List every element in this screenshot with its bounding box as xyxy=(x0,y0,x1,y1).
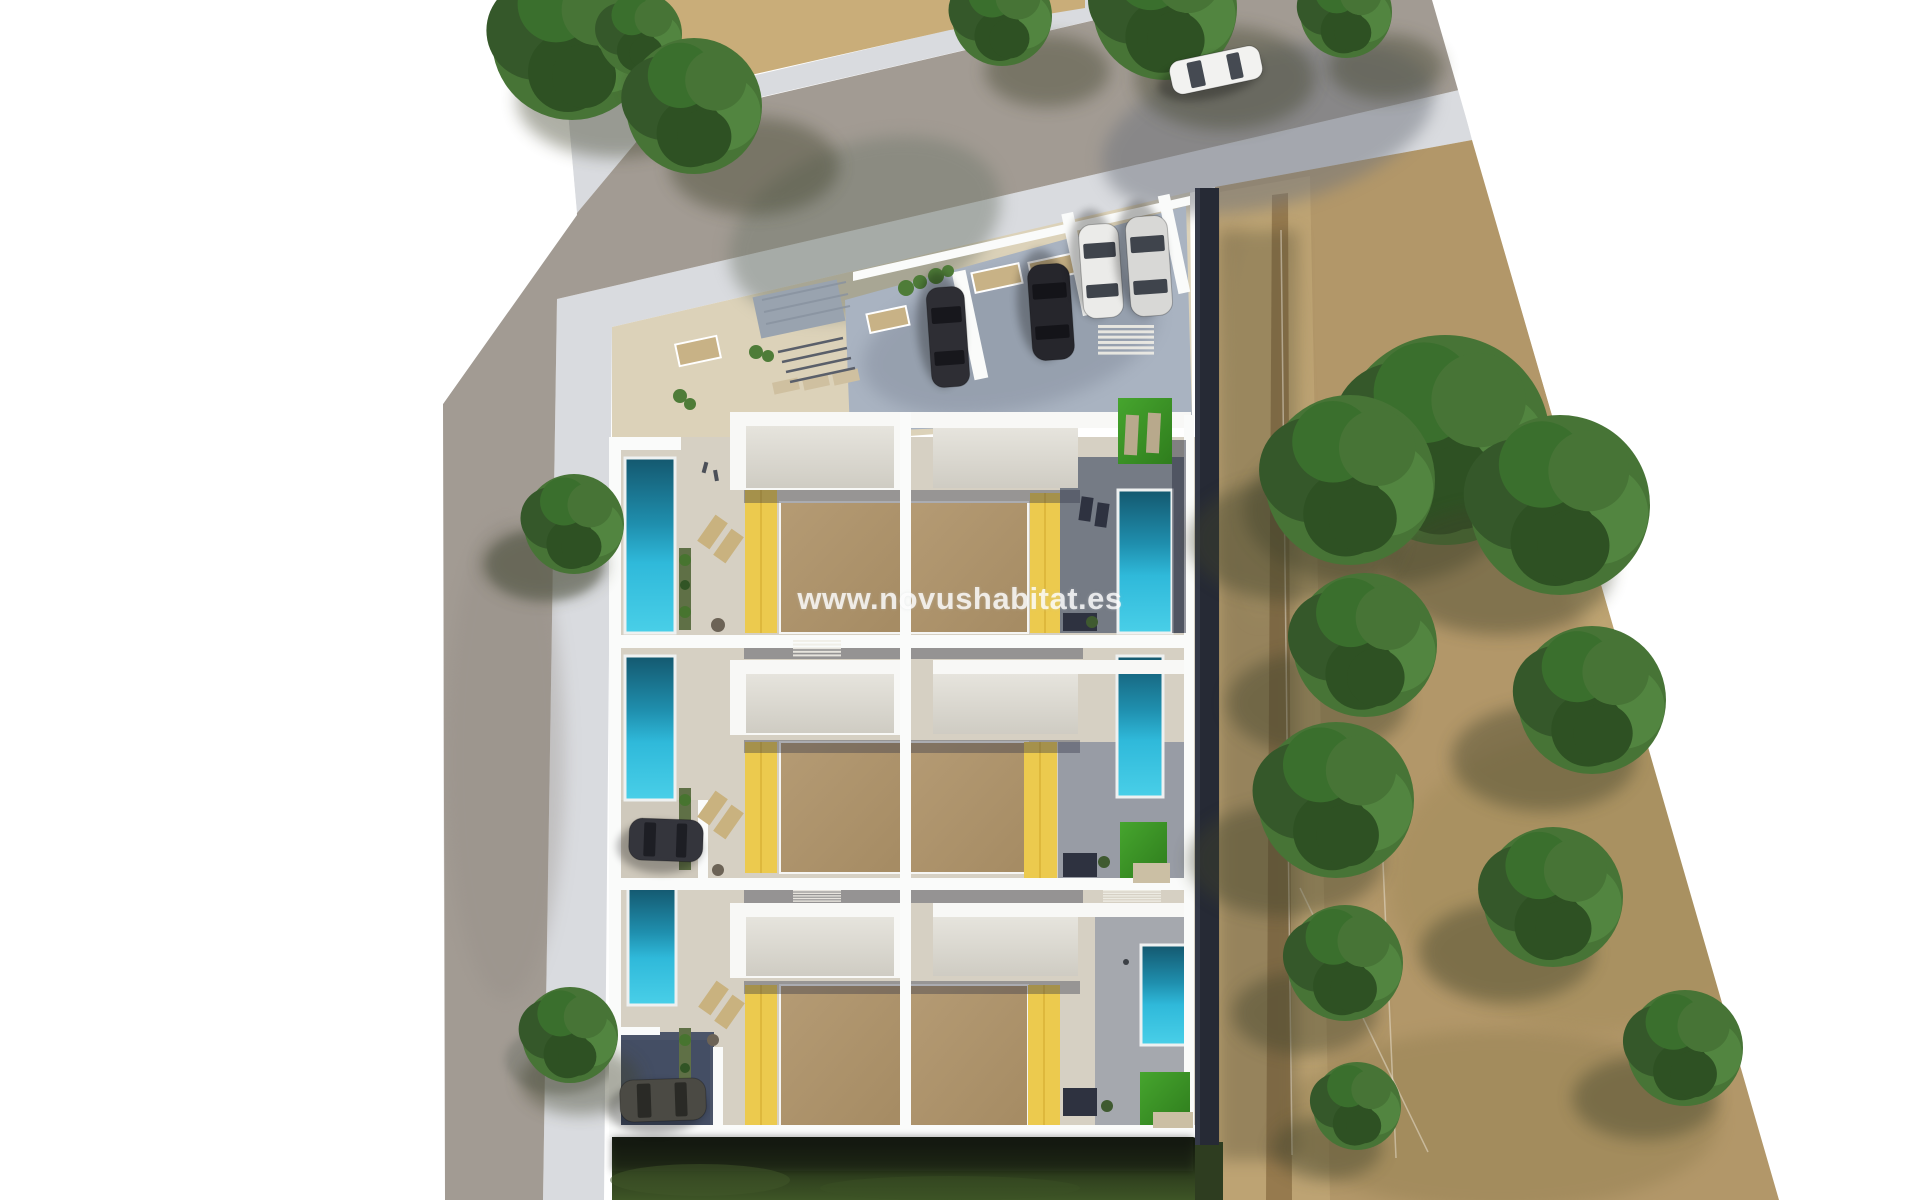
tree-foliage xyxy=(562,527,602,567)
stairs-bar xyxy=(793,898,841,899)
car-rear-glass xyxy=(676,823,688,857)
tree-foliage xyxy=(1331,966,1377,1012)
stairs-bar xyxy=(793,654,841,656)
tree-foliage xyxy=(1347,649,1405,707)
car-rear-glass xyxy=(1086,283,1119,298)
stairs-bar xyxy=(1103,898,1161,899)
car-windshield xyxy=(1130,235,1165,253)
roof-east-slab xyxy=(933,917,1078,976)
grass-texture xyxy=(610,1164,790,1196)
row1-east-shade xyxy=(1172,440,1186,633)
car-roof xyxy=(651,1082,675,1119)
tree-foliage xyxy=(1582,639,1649,706)
stairs-bar xyxy=(793,647,841,649)
plant-pot xyxy=(1098,856,1110,868)
car-roof xyxy=(1130,252,1168,280)
stairs-bar xyxy=(1098,325,1154,328)
stairs-bar xyxy=(1103,890,1161,891)
tree-foliage xyxy=(1544,839,1607,902)
car-roof xyxy=(1032,298,1070,325)
car-rear-glass xyxy=(934,350,965,366)
plant-pot xyxy=(1086,616,1098,628)
pool xyxy=(625,656,675,800)
wall-top xyxy=(609,437,681,450)
tree-foliage xyxy=(677,109,731,163)
tree-foliage xyxy=(1346,1108,1381,1143)
grass-texture xyxy=(820,1176,1080,1200)
watermark: www.novushabitat.es xyxy=(797,581,1122,617)
car-rear-glass xyxy=(1133,279,1168,295)
car-rear-glass xyxy=(1035,324,1070,340)
tree-foliage xyxy=(1538,510,1610,582)
tree-foliage xyxy=(1326,735,1396,805)
tree-foliage xyxy=(1548,430,1629,511)
roof-shadow xyxy=(744,981,906,994)
car-windshield xyxy=(643,822,656,856)
grass-pad xyxy=(1133,863,1170,883)
tree-foliage xyxy=(558,1037,596,1075)
wall-spine xyxy=(900,412,911,1127)
fire-pit xyxy=(712,864,724,876)
fire-pit xyxy=(711,618,725,632)
roof-slab xyxy=(746,674,894,733)
boundary-wall-edge xyxy=(1195,188,1200,1145)
east-sofa xyxy=(1063,1088,1097,1116)
pool xyxy=(1141,945,1187,1045)
roof-east-band xyxy=(933,903,1191,917)
tree-foliage xyxy=(990,19,1030,59)
pool xyxy=(1117,656,1163,797)
roof-shadow xyxy=(908,740,1080,753)
person xyxy=(1123,959,1129,965)
stairs-bar xyxy=(793,644,841,646)
shrub xyxy=(679,606,691,618)
stairs-bar xyxy=(793,640,841,642)
roof-shadow xyxy=(908,490,1080,503)
stairs-bar xyxy=(1103,893,1161,894)
tree-foliage xyxy=(1671,1051,1717,1097)
car-roof xyxy=(1083,258,1119,285)
roof-shadow xyxy=(908,981,1080,994)
shrub xyxy=(898,280,914,296)
tree-foliage xyxy=(635,0,673,37)
tree-foliage xyxy=(564,995,607,1038)
tree-foliage xyxy=(1536,901,1592,957)
roof-east-slab xyxy=(933,428,1078,488)
tree-foliage xyxy=(685,50,746,111)
stairs-bar xyxy=(793,893,841,894)
shrub xyxy=(679,1034,691,1046)
stairs-bar xyxy=(1098,341,1154,344)
tree-foliage xyxy=(1677,1000,1729,1052)
roof-slab xyxy=(746,917,894,976)
roof-slab xyxy=(746,426,894,488)
car-windshield xyxy=(1032,282,1067,300)
pool xyxy=(628,888,676,1005)
tree-foliage xyxy=(568,483,613,528)
shrub xyxy=(684,398,696,410)
stairs-bar xyxy=(1098,346,1154,349)
tree-foliage xyxy=(1574,704,1633,763)
shrub xyxy=(679,554,691,566)
stairs-bar xyxy=(793,900,841,901)
roof-shadow xyxy=(744,740,906,753)
stairs-bar xyxy=(1103,900,1161,901)
roof-east-slab xyxy=(933,674,1078,734)
stairs-bar xyxy=(793,651,841,653)
wall-base-grass xyxy=(1195,1142,1223,1200)
tree-foliage xyxy=(1335,14,1372,51)
wall-carport xyxy=(713,1047,723,1133)
stairs-bar xyxy=(793,895,841,896)
shrub xyxy=(680,580,690,590)
stairs-bar xyxy=(1098,336,1154,339)
grass-pad xyxy=(1153,1112,1193,1128)
tree-foliage xyxy=(1329,484,1397,552)
car-roof xyxy=(931,323,965,351)
tree-foliage xyxy=(1337,915,1389,967)
east-sofa xyxy=(1063,853,1097,877)
fire-pit xyxy=(707,1034,719,1046)
car-rear-glass xyxy=(674,1082,687,1116)
car-roof xyxy=(656,822,676,859)
patio xyxy=(780,742,902,873)
stairs-bar xyxy=(793,890,841,891)
tree-foliage xyxy=(1356,585,1421,650)
stairs-bar xyxy=(1098,352,1154,355)
roof-east-band xyxy=(933,660,1191,674)
grass-lounger xyxy=(1146,413,1161,454)
shrub xyxy=(680,1063,690,1073)
car-windshield xyxy=(931,306,962,324)
stairs-bar xyxy=(1103,895,1161,896)
patio xyxy=(780,985,902,1127)
shrub xyxy=(762,350,774,362)
pool xyxy=(625,458,675,633)
car-windshield xyxy=(637,1083,652,1117)
tree-foliage xyxy=(1351,1069,1391,1109)
roof-shadow xyxy=(744,490,906,503)
plant-pot xyxy=(1101,1100,1113,1112)
patio xyxy=(908,742,1028,873)
car-windshield xyxy=(1083,242,1116,259)
aerial-render: www.novushabitat.es xyxy=(0,0,1920,1200)
shrub xyxy=(679,794,691,806)
pool xyxy=(1118,490,1172,633)
shrub xyxy=(749,345,763,359)
tree-foliage xyxy=(1339,409,1416,486)
patio xyxy=(908,985,1028,1127)
grass-lounger xyxy=(1124,415,1139,456)
stairs-bar xyxy=(1098,330,1154,333)
tree-foliage xyxy=(1317,804,1379,866)
